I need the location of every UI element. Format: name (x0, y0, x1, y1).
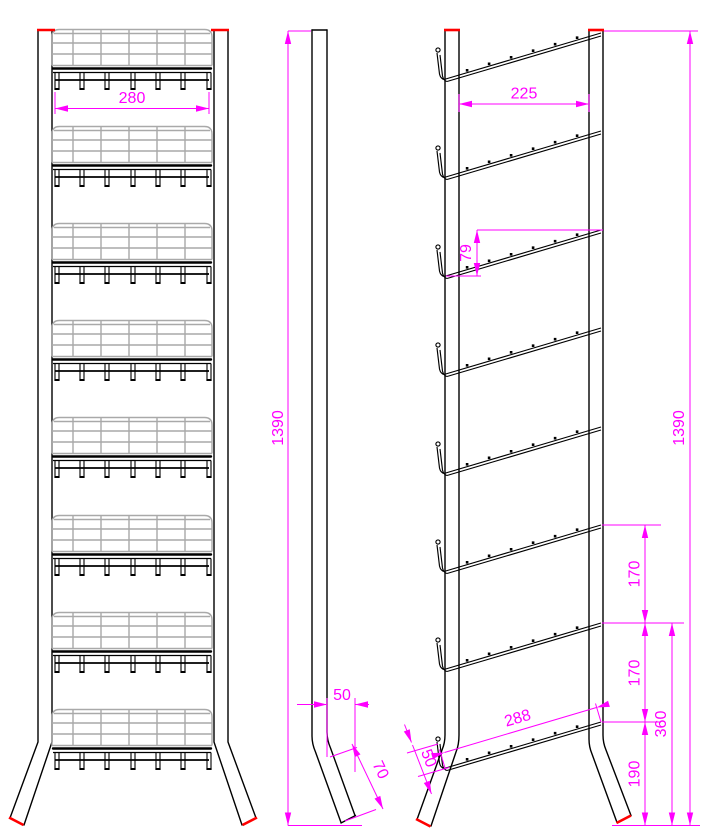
dim-label-inner-width: 225 (511, 86, 538, 103)
front-view: 280 (10, 30, 256, 826)
dim-front-width: 280 (55, 90, 209, 114)
dim-label-bottom-shelf-to-ground: 190 (627, 761, 644, 788)
dim-label-front-width: 280 (119, 90, 146, 107)
technical-drawing-canvas: 280 1390 50 70 (0, 0, 718, 837)
rear-shelf-rails (436, 33, 601, 771)
dim-rear-total-height: 1390 (604, 31, 700, 826)
dim-side-post-depth: 50 (297, 687, 369, 772)
dim-label-shelf-to-ground: 360 (653, 711, 670, 738)
dim-label-shelf-length: 288 (503, 707, 534, 731)
dim-label-side-height: 1390 (270, 410, 287, 446)
rear-posts-and-legs (417, 31, 631, 826)
front-posts-and-legs (10, 31, 256, 825)
dim-label-shelf-gap-lower: 170 (627, 660, 644, 687)
dim-shelf-length: 288 (440, 704, 602, 769)
dim-label-shelf-gap-upper: 170 (627, 561, 644, 588)
rear-view: 225 79 170 170 360 190 1390 (405, 31, 701, 826)
dim-label-side-post-depth: 50 (333, 687, 351, 704)
dim-label-rear-total-height: 1390 (671, 410, 688, 446)
rack-drawing: 280 1390 50 70 (0, 0, 718, 837)
side-view: 1390 50 70 (270, 30, 392, 826)
dim-side-height: 1390 (270, 31, 362, 826)
dim-shelf-to-ground: 360 (653, 623, 672, 826)
dim-shelf-gap-upper: 170 (602, 525, 661, 623)
dim-side-foot-length: 70 (330, 744, 392, 821)
front-baskets (52, 30, 212, 770)
dim-label-side-foot-length: 70 (369, 758, 392, 781)
dim-label-shelf-drop: 79 (458, 244, 475, 262)
dim-rear-inner-width: 225 (459, 86, 589, 113)
